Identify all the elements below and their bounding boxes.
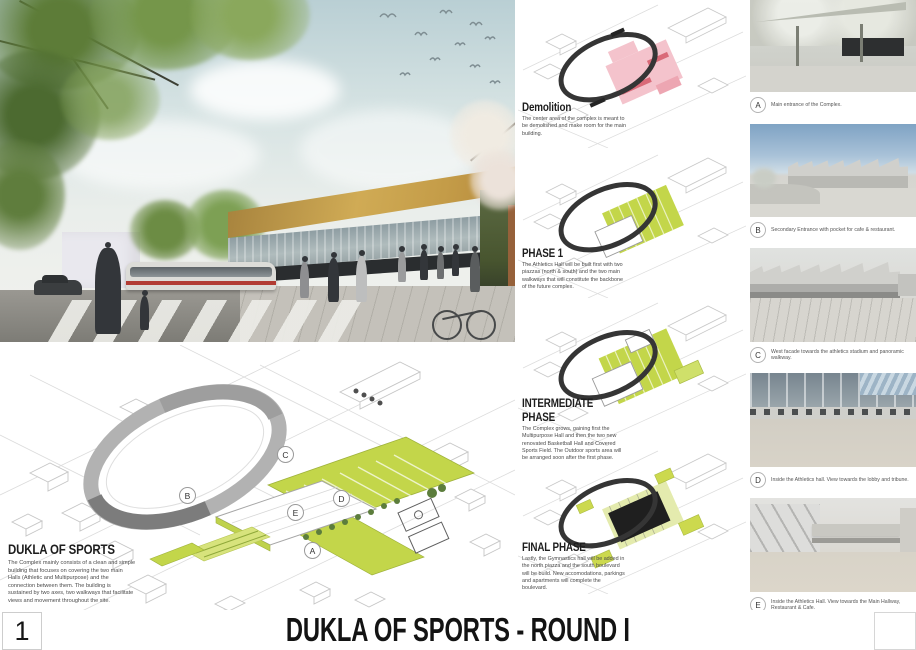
- pedestrian: [356, 256, 367, 302]
- figure-caption-b: B Secondary Entrance with pocket for caf…: [750, 217, 916, 240]
- axon-marker-a: A: [304, 542, 321, 559]
- site-description: The Complex mainly consists of a clean a…: [8, 560, 136, 605]
- figure-photo-d: [750, 373, 916, 467]
- corner-box: [874, 612, 916, 650]
- blossom-tree: [440, 100, 515, 240]
- axon-marker-d: D: [333, 490, 350, 507]
- axon-marker-e: E: [287, 504, 304, 521]
- figure-label-c: C: [750, 347, 766, 363]
- presentation-board: C B D E A DUKLA OF SPORTS The Complex ma…: [0, 0, 916, 650]
- figure-caption-text: Secondary Entrance with pocket for cafe …: [771, 227, 895, 233]
- pedestrian: [398, 252, 406, 282]
- site-title: DUKLA OF SPORTS: [8, 541, 158, 557]
- figure-photo-e: [750, 498, 916, 592]
- lawn-strips: [150, 527, 270, 566]
- phase-description: The center area of the complex is meant …: [522, 116, 626, 138]
- car: [34, 280, 82, 295]
- axon-marker-b: B: [179, 487, 196, 504]
- phases-column: Demolition The center area of the comple…: [518, 0, 746, 612]
- pedestrian: [420, 250, 428, 280]
- pedestrian: [140, 296, 149, 330]
- pedestrian: [452, 250, 459, 276]
- phase-block: Demolition The center area of the comple…: [522, 100, 642, 138]
- board-number-box: 1: [2, 612, 42, 650]
- figure-label-d: D: [750, 472, 766, 488]
- site-overview: DUKLA OF SPORTS The Complex mainly consi…: [8, 541, 158, 605]
- pedestrian: [328, 258, 339, 302]
- phase-description: Lastly, the Gymnastics hall will be adde…: [522, 556, 626, 592]
- pedestrian: [95, 248, 121, 334]
- figure-caption-text: Inside the Athletics hall. View towards …: [771, 477, 909, 483]
- board-number: 1: [14, 616, 29, 647]
- phase-title: Demolition: [522, 100, 642, 114]
- bicycle: [432, 296, 496, 340]
- figure-caption-text: Main entrance of the Complex.: [771, 102, 842, 108]
- title-bar: DUKLA OF SPORTS - ROUND I 1: [0, 610, 916, 650]
- figure-photo-a: [750, 0, 916, 92]
- phase-title: PHASE 1: [522, 246, 642, 260]
- board-title: DUKLA OF SPORTS - ROUND I: [0, 611, 916, 649]
- pedestrian: [300, 262, 309, 298]
- axon-marker-c: C: [277, 446, 294, 463]
- pedestrian: [437, 252, 444, 279]
- birds-flock: [320, 5, 510, 105]
- pedestrian: [470, 252, 480, 292]
- figure-caption-c: C West facade towards the athletics stad…: [750, 342, 916, 365]
- phase-description: The Athletics Hall will be built first w…: [522, 262, 626, 291]
- phase-block: PHASE 1 The Athletics Hall will be built…: [522, 246, 642, 291]
- figure-label-a: A: [750, 97, 766, 113]
- hero-render: [0, 0, 515, 342]
- figure-photo-c: [750, 248, 916, 342]
- phase-title: INTERMEDIATE PHASE: [522, 396, 642, 424]
- figure-caption-d: D Inside the Athletics hall. View toward…: [750, 467, 916, 490]
- figures-column: A Main entrance of the Complex. B Second…: [750, 0, 916, 612]
- figure-caption-text: West facade towards the athletics stadiu…: [771, 349, 916, 361]
- phase-block: FINAL PHASE Lastly, the Gymnastics hall …: [522, 540, 642, 592]
- figure-photo-b: [750, 124, 916, 217]
- sports-courts: [398, 498, 449, 553]
- site-axonometric: C B D E A DUKLA OF SPORTS The Complex ma…: [0, 345, 515, 612]
- phase-title: FINAL PHASE: [522, 540, 642, 554]
- figure-label-b: B: [750, 222, 766, 238]
- tram: [126, 262, 276, 290]
- figure-caption-a: A Main entrance of the Complex.: [750, 92, 916, 115]
